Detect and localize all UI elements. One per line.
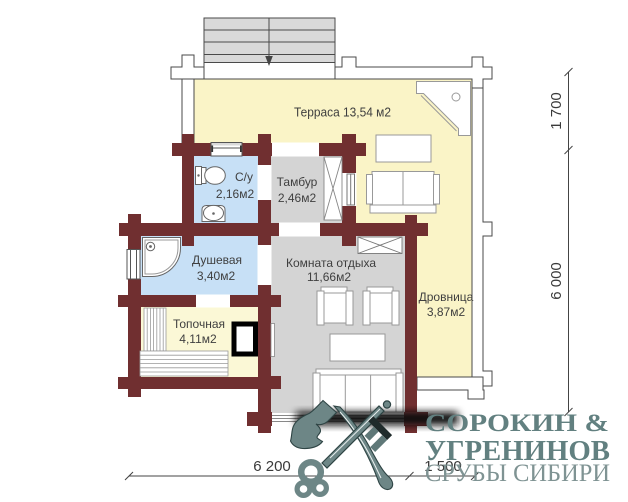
svg-text:Комната отдыха: Комната отдыха [286, 256, 376, 270]
svg-text:Дровница: Дровница [419, 290, 474, 304]
svg-text:3,40м2: 3,40м2 [197, 269, 236, 283]
svg-text:4,11м2: 4,11м2 [179, 332, 217, 346]
svg-text:С/у: С/у [235, 170, 253, 184]
svg-text:СРУБЫ СИБИРИ: СРУБЫ СИБИРИ [425, 460, 610, 487]
svg-text:Тамбур: Тамбур [277, 175, 318, 189]
svg-text:Топочная: Топочная [173, 317, 225, 331]
svg-text:1 700: 1 700 [548, 92, 565, 130]
svg-text:11,66м2: 11,66м2 [307, 270, 351, 284]
svg-text:2,16м2: 2,16м2 [216, 187, 255, 201]
svg-text:2,46м2: 2,46м2 [278, 191, 317, 205]
svg-text:Душевая: Душевая [192, 253, 242, 267]
svg-text:6 200: 6 200 [253, 458, 291, 475]
svg-text:3,87м2: 3,87м2 [427, 305, 466, 319]
svg-text:СОРОКИН &: СОРОКИН & [425, 410, 609, 437]
svg-text:6 000: 6 000 [548, 262, 565, 300]
svg-text:Терраса 13,54 м2: Терраса 13,54 м2 [294, 106, 391, 120]
